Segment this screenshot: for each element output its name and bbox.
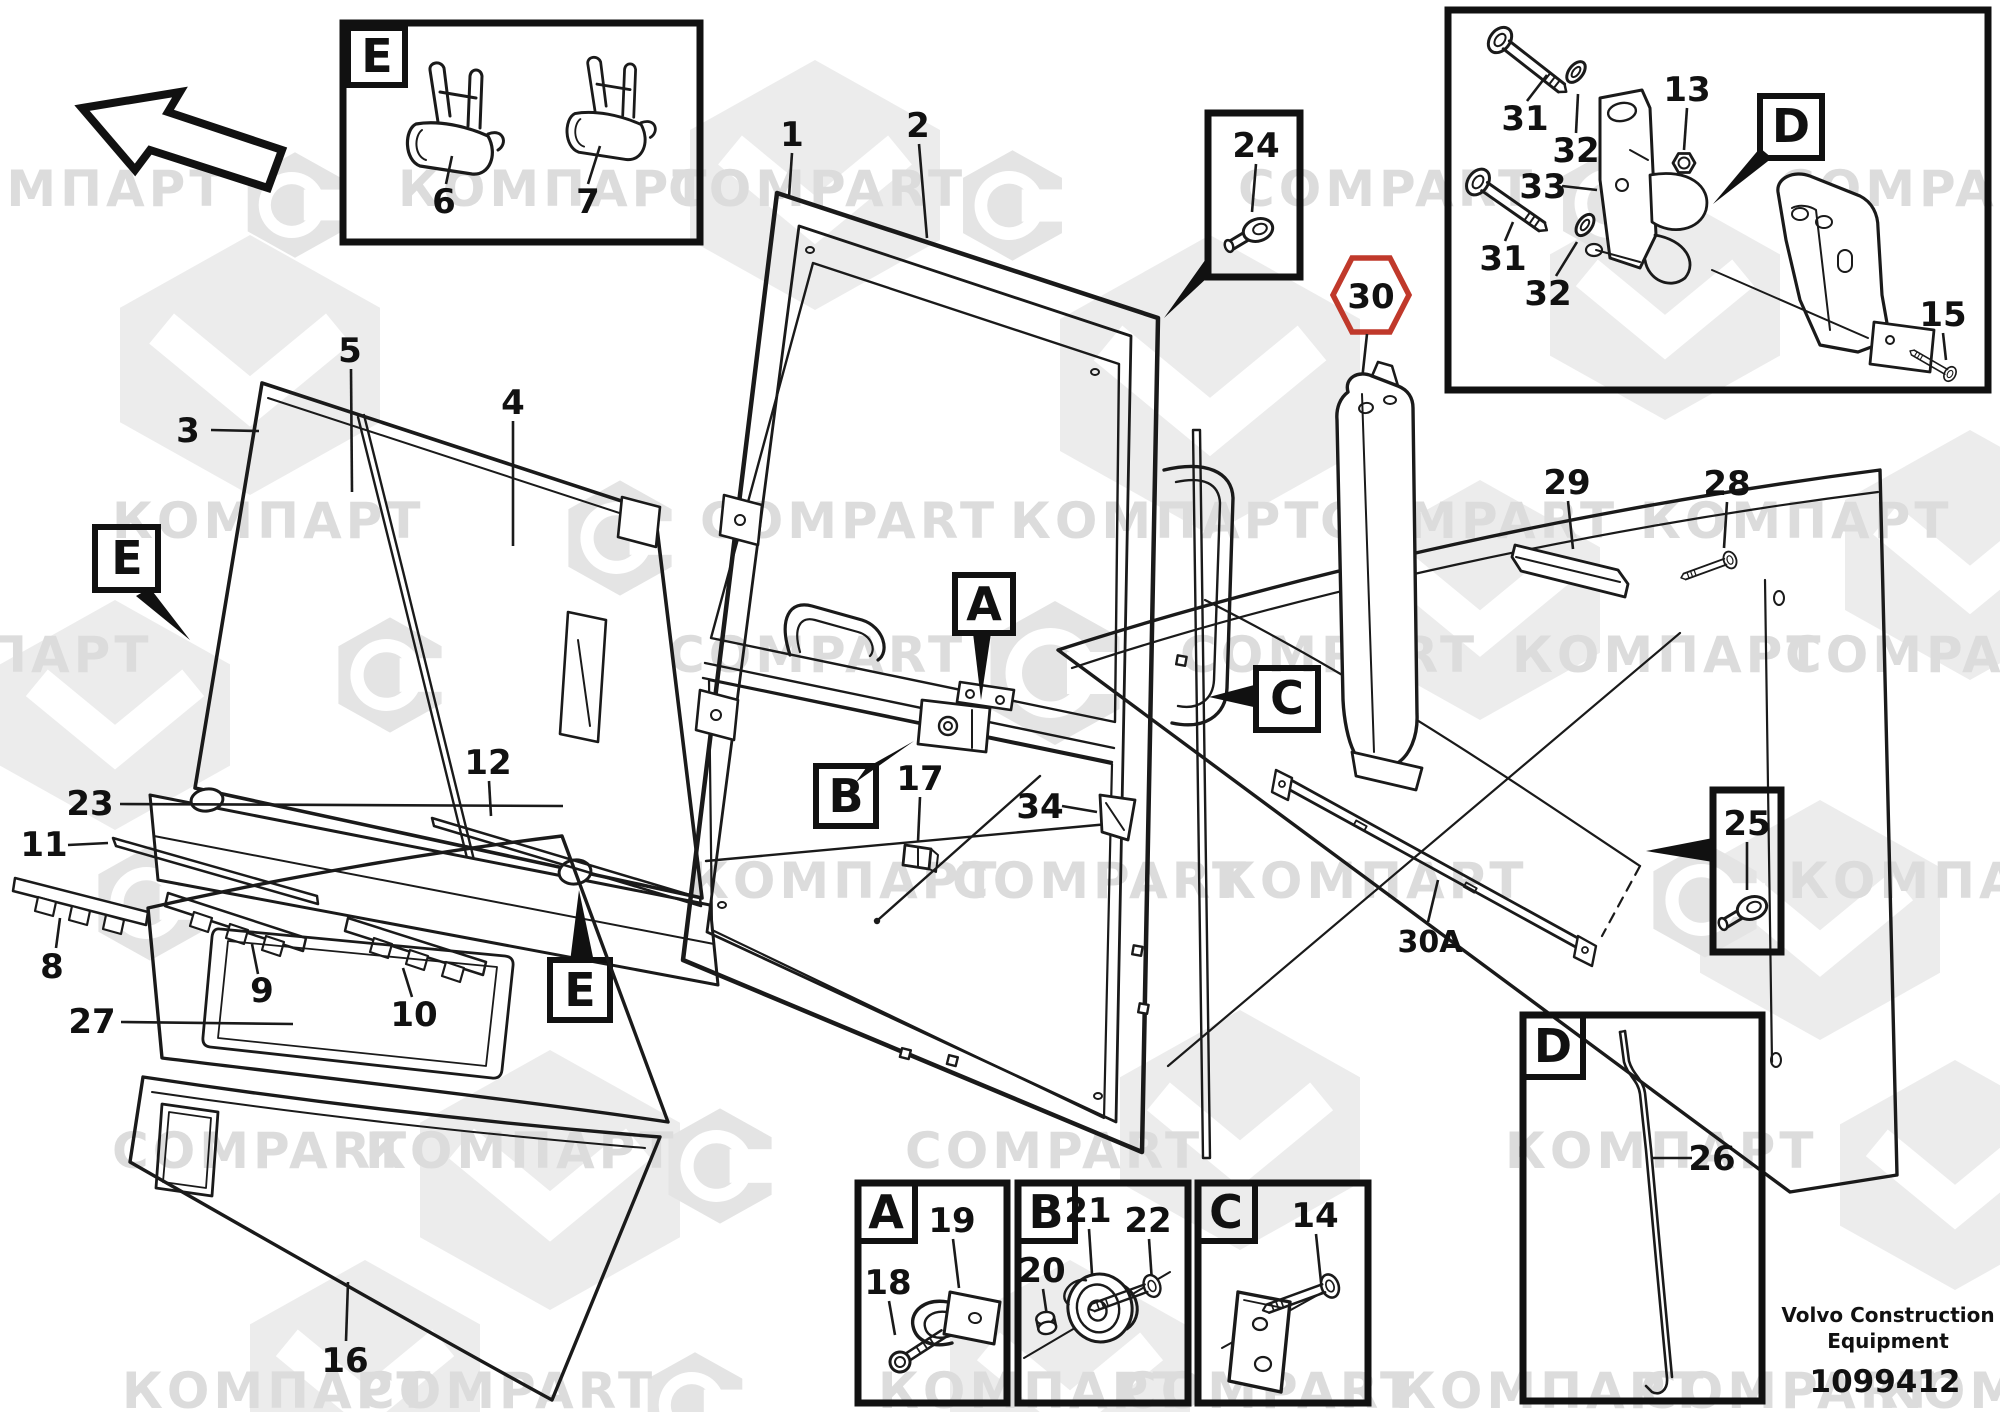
part-label-29: 29 <box>1543 463 1590 503</box>
svg-text:E: E <box>111 531 142 585</box>
part-label-7: 7 <box>576 182 600 222</box>
part-label-32-top: 32 <box>1552 131 1599 171</box>
part-label-30a: 30A <box>1398 925 1464 960</box>
part-label-26: 26 <box>1688 1139 1735 1179</box>
part-label-30: 30 <box>1347 277 1394 317</box>
document-number: 1099412 <box>1810 1364 1961 1400</box>
part-label-6: 6 <box>432 182 456 222</box>
svg-text:C: C <box>1209 1185 1243 1239</box>
part-label-32-bottom: 32 <box>1524 274 1571 314</box>
svg-text:C: C <box>1270 671 1304 725</box>
svg-text:B: B <box>828 769 863 823</box>
part-label-22: 22 <box>1124 1201 1171 1241</box>
svg-text:КОМПАРТ: КОМПАРТ <box>1505 1122 1817 1180</box>
part-label-27: 27 <box>68 1002 115 1042</box>
part-label-34: 34 <box>1016 787 1063 827</box>
part-label-33: 33 <box>1519 167 1566 207</box>
svg-text:13: 13 <box>1663 70 1710 110</box>
part-label-4: 4 <box>501 383 525 423</box>
svg-text:КОМПАРТ: КОМПАРТ <box>1010 492 1322 550</box>
part-label-9: 9 <box>250 971 274 1011</box>
part-label-11: 11 <box>20 825 67 865</box>
part-label-31-bottom: 31 <box>1479 239 1526 279</box>
part-label-21: 21 <box>1064 1191 1111 1231</box>
retainer-strip-9: 9 <box>165 893 306 1011</box>
window-glass-assembly: 3 5 4 <box>176 331 702 898</box>
part-label-14: 14 <box>1291 1196 1338 1236</box>
detail-letter-e: E <box>361 29 392 83</box>
svg-text:A: A <box>966 577 1002 631</box>
svg-text:КОМПАРТ: КОМПАРТ <box>1788 852 2000 910</box>
part-label-20: 20 <box>1018 1251 1065 1291</box>
part-label-12: 12 <box>464 743 511 783</box>
part-label-25: 25 <box>1723 804 1770 844</box>
detail-box-d-bottom: D 26 <box>1523 1015 1762 1401</box>
part-label-19: 19 <box>928 1201 975 1241</box>
part-label-2: 2 <box>906 106 930 146</box>
exploded-view-diagram: КОМПАРТ КОМПАРТ COMPART COMPART COMPART … <box>0 0 2000 1412</box>
part-label-28: 28 <box>1703 464 1750 504</box>
svg-text:A: A <box>868 1185 904 1239</box>
part-label-8: 8 <box>40 947 64 987</box>
kompart-watermark-layer: КОМПАРТ КОМПАРТ COMPART COMPART COMPART … <box>0 60 2000 1412</box>
bracket-34: 34 <box>1016 787 1135 840</box>
svg-text:COMPART: COMPART <box>905 1122 1203 1180</box>
svg-text:COMPART: COMPART <box>358 1362 656 1412</box>
svg-text:B: B <box>1028 1185 1063 1239</box>
svg-text:КОМПАРТ: КОМПАРТ <box>365 1122 677 1180</box>
part-label-5: 5 <box>338 331 362 371</box>
part-label-10: 10 <box>390 995 437 1035</box>
nut-20 <box>1035 1310 1057 1335</box>
svg-text:КОМПАРТ: КОМПАРТ <box>0 626 152 684</box>
svg-text:КОМПАРТ: КОМПАРТ <box>1512 626 1824 684</box>
svg-text:E: E <box>564 963 595 1017</box>
svg-text:COMPART: COMPART <box>1180 626 1478 684</box>
part-label-23: 23 <box>66 784 113 824</box>
svg-text:D: D <box>1534 1019 1572 1073</box>
part-label-18: 18 <box>864 1263 911 1303</box>
part-label-16: 16 <box>321 1341 368 1381</box>
brand-line-1: Volvo Construction <box>1781 1303 1994 1327</box>
svg-text:КОМПАРТ: КОМПАРТ <box>0 160 227 218</box>
brand-line-2: Equipment <box>1827 1329 1949 1353</box>
svg-text:15: 15 <box>1919 295 1966 335</box>
parts-diagram-page: КОМПАРТ КОМПАРТ COMPART COMPART COMPART … <box>0 0 2000 1412</box>
svg-text:D: D <box>1772 99 1810 153</box>
part-label-17: 17 <box>896 759 943 799</box>
part-label-24: 24 <box>1232 126 1279 166</box>
svg-text:COMPART: COMPART <box>1785 626 2000 684</box>
nut-13: 13 <box>1663 70 1710 173</box>
part-label-31-top: 31 <box>1501 99 1548 139</box>
part-label-1: 1 <box>780 115 804 155</box>
svg-text:COMPART: COMPART <box>1238 160 1536 218</box>
part-label-3: 3 <box>176 411 200 451</box>
clip-17: 17 <box>896 759 943 872</box>
pillar-part-30 <box>1337 362 1422 790</box>
